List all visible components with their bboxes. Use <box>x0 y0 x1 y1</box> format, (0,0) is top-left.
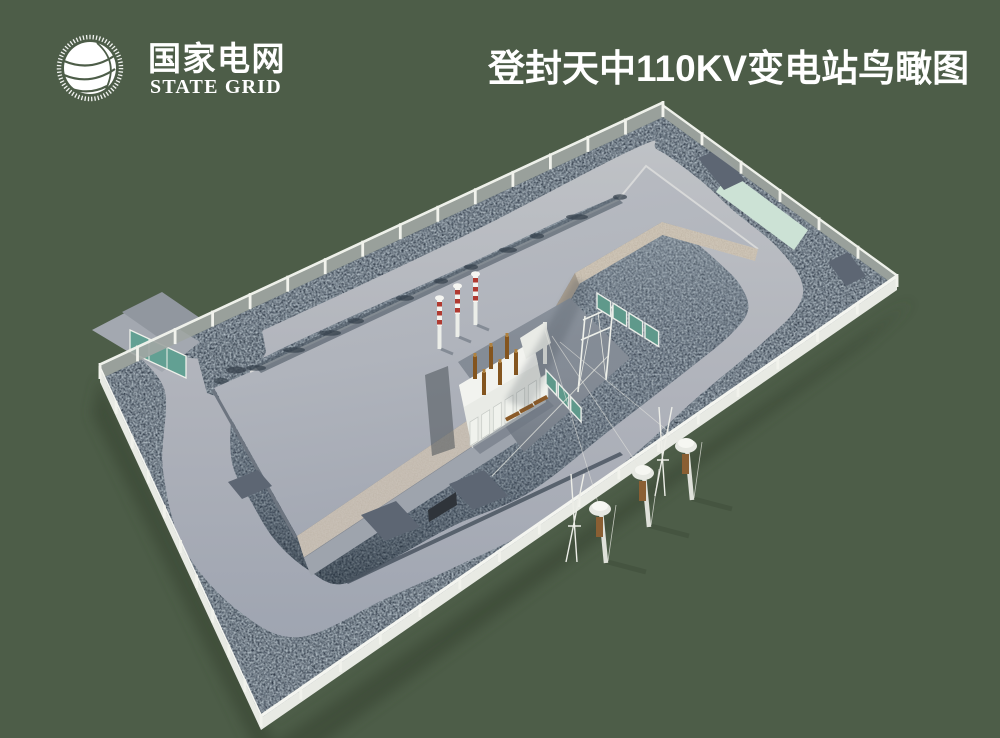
svg-text:登封天中110KV变电站鸟瞰图: 登封天中110KV变电站鸟瞰图 <box>487 48 969 89</box>
svg-text:国家电网: 国家电网 <box>148 40 286 77</box>
svg-text:STATE GRID: STATE GRID <box>150 76 282 98</box>
